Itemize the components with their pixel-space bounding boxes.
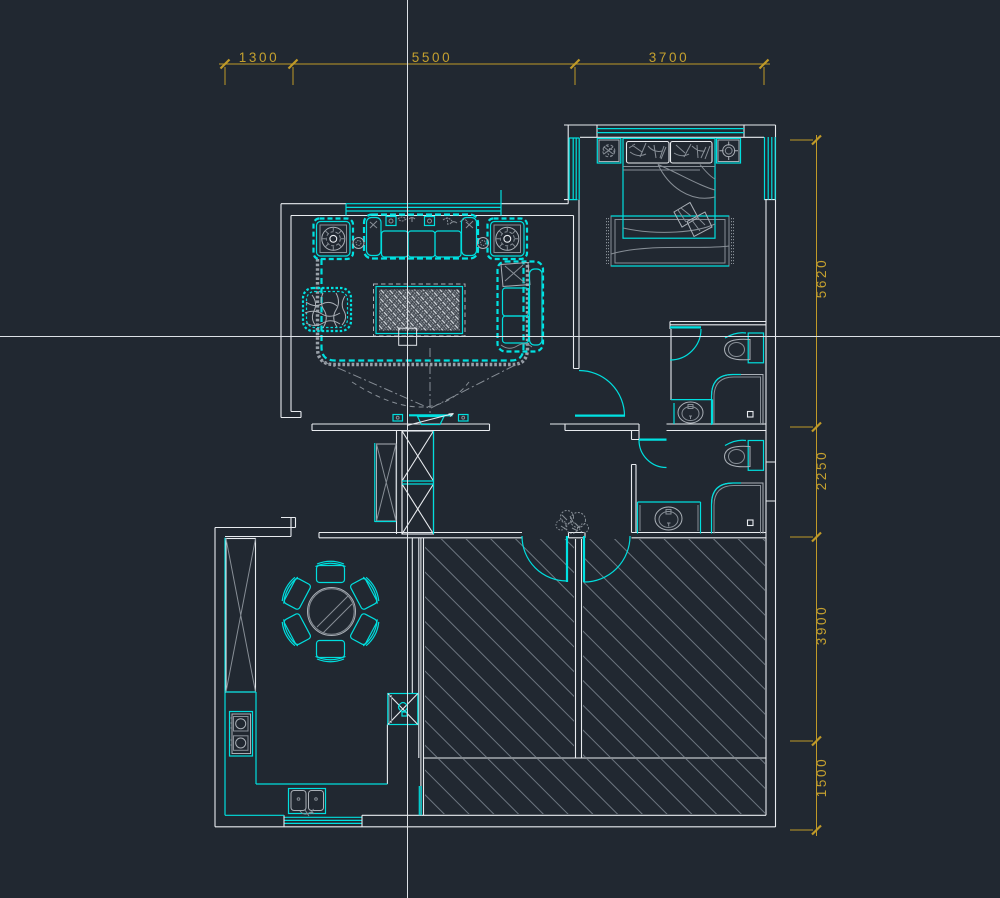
svg-text:3900: 3900 [814,605,829,645]
svg-text:5620: 5620 [814,258,829,298]
svg-text:5500: 5500 [412,50,452,65]
svg-text:1500: 1500 [814,757,829,797]
svg-text:3700: 3700 [649,50,689,65]
svg-text:2250: 2250 [814,450,829,490]
svg-text:1300: 1300 [239,50,279,65]
